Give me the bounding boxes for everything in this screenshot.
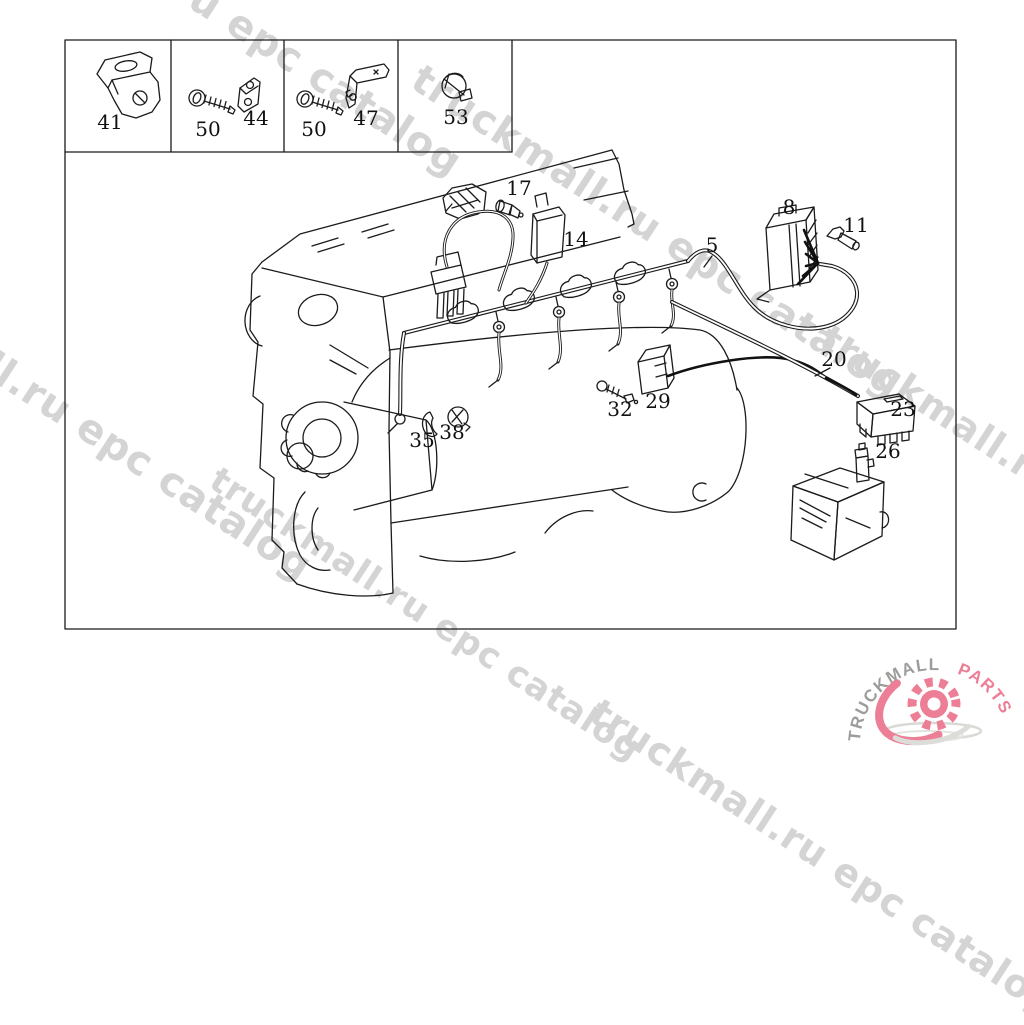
callout-38[interactable]: 38	[439, 420, 464, 444]
callout-20[interactable]: 20	[821, 347, 846, 371]
legend-label-41: 41	[97, 110, 122, 134]
callout-14[interactable]: 14	[563, 227, 588, 251]
legend-part-41	[97, 52, 160, 118]
callout-8[interactable]: 8	[783, 195, 796, 219]
legend-part-47	[346, 64, 389, 108]
callout-23[interactable]: 23	[890, 397, 915, 421]
callout-11[interactable]: 11	[843, 213, 868, 237]
sensor-17	[495, 199, 523, 218]
callout-26[interactable]: 26	[875, 439, 900, 463]
engine-outline	[245, 150, 746, 596]
connector-8	[757, 205, 818, 302]
legend-part-53	[442, 73, 472, 101]
svg-text:PARTS: PARTS	[955, 660, 1016, 718]
coupler-29	[638, 345, 674, 394]
module-14	[526, 193, 565, 303]
legend-label-44: 44	[243, 106, 268, 130]
callout-17[interactable]: 17	[506, 176, 531, 200]
callout-5[interactable]: 5	[706, 233, 719, 257]
coil-connector	[431, 211, 513, 318]
callout-29[interactable]: 29	[645, 389, 670, 413]
legend-label-50b: 50	[301, 117, 326, 141]
legend-part-50a	[189, 90, 235, 114]
truckmall-logo: TRUCKMALL PARTS	[845, 655, 1016, 750]
legend-part-50b	[297, 91, 343, 115]
logo-brand-secondary: PARTS	[955, 660, 1016, 718]
legend-label-50a: 50	[195, 117, 220, 141]
callout-35[interactable]: 35	[409, 428, 434, 452]
control-box	[791, 468, 889, 560]
callout-32[interactable]: 32	[607, 397, 632, 421]
legend-label-47: 47	[353, 106, 378, 130]
legend-label-53: 53	[443, 105, 468, 129]
parts-diagram: 41 50 44 50 47 53	[0, 0, 1024, 750]
